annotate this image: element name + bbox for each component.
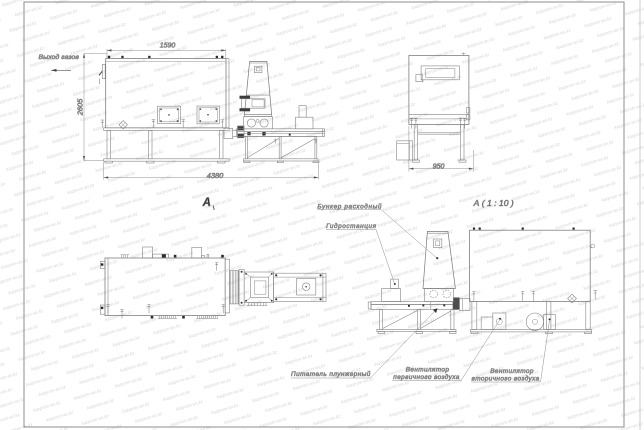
svg-text:Выход газов: Выход газов: [39, 53, 80, 61]
svg-text:4380: 4380: [207, 171, 224, 180]
svg-text:950: 950: [433, 164, 445, 171]
svg-text:1590: 1590: [160, 43, 176, 50]
svg-text:Питатель плунжерный: Питатель плунжерный: [291, 370, 371, 378]
svg-text:А ( 1 : 10 ): А ( 1 : 10 ): [473, 198, 514, 208]
svg-text:2605: 2605: [75, 98, 84, 116]
svg-text:Бункер расходный: Бункер расходный: [317, 202, 382, 210]
svg-text:Вентилятор: Вентилятор: [406, 366, 450, 373]
svg-text:первичного воздуха: первичного воздуха: [393, 373, 459, 381]
svg-text:Вентилятор: Вентилятор: [490, 368, 534, 375]
svg-text:Гидростанция: Гидростанция: [326, 222, 377, 230]
svg-text:вторичного воздуха: вторичного воздуха: [472, 374, 540, 382]
svg-text:A: A: [202, 197, 211, 209]
